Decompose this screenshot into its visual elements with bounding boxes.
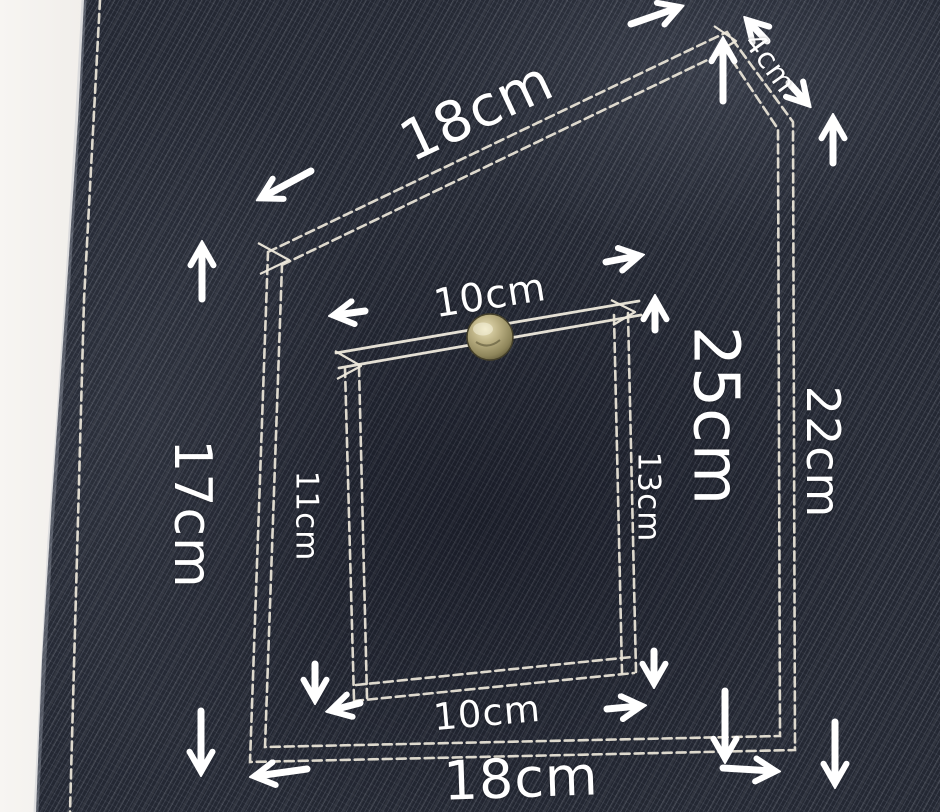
inner-pocket-left-stitch-2 — [359, 367, 367, 698]
label-inner-bottom-width: 10cm — [432, 690, 542, 736]
arrow-10top-right — [606, 256, 637, 262]
label-outer-total-height: 25cm — [685, 326, 748, 506]
arrow-18bottom-left — [257, 769, 307, 776]
label-inner-left-height: 11cm — [291, 471, 322, 562]
arrow-18bottom-right — [723, 768, 773, 771]
arrow-10bottom-right — [607, 706, 639, 709]
arrow-10bottom-left — [333, 703, 360, 710]
inner-pocket-right-stitch-2 — [614, 315, 622, 673]
label-outer-bottom-edge: 18cm — [443, 749, 600, 808]
label-outer-left-edge: 17cm — [166, 439, 218, 588]
arrow-top18-right — [631, 8, 677, 24]
annotated-denim-photo: 18cm 4cm 22cm 25cm 17cm 10cm 11cm 13cm 1… — [0, 0, 940, 812]
bartack-outer-top-left — [258, 243, 289, 274]
label-outer-right-edge: 22cm — [800, 386, 846, 519]
label-inner-right-height: 13cm — [633, 452, 664, 543]
arrow-top18-left — [263, 171, 311, 197]
button-highlight — [473, 323, 493, 336]
fabric-fold-edge — [36, 0, 84, 812]
left-seam-stitch — [70, 0, 100, 812]
inner-pocket-left-stitch — [345, 368, 354, 700]
inner-pocket-bottom-stitch-2 — [356, 657, 632, 685]
arrow-10top-left — [336, 311, 365, 315]
